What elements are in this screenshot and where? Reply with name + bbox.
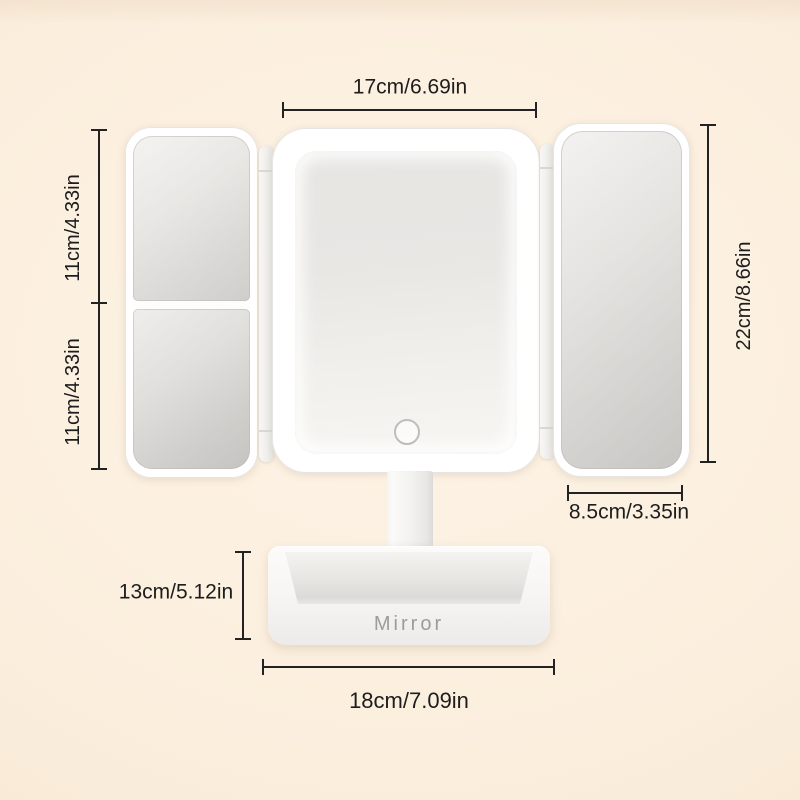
dim-line-side-panel-width <box>567 492 683 494</box>
product-dimension-diagram: Mirror 17cm/6.69in 11cm/4.33in 11cm/4.33… <box>0 0 800 800</box>
left-bottom-mirror-glass <box>133 309 250 469</box>
dim-line-right-total-height <box>707 124 709 463</box>
left-top-mirror-glass <box>133 136 250 301</box>
left-fold-panel <box>125 127 258 478</box>
right-mirror-glass <box>561 131 682 469</box>
dim-label-side-panel-width: 8.5cm/3.35in <box>569 500 689 523</box>
right-fold-panel <box>553 123 690 477</box>
center-mirror-glass <box>295 151 517 454</box>
dim-line-left-heights <box>98 129 100 470</box>
dim-label-stand-height: 13cm/5.12in <box>119 580 233 603</box>
base-tray: Mirror <box>268 546 550 645</box>
dim-label-left-upper-height: 11cm/4.33in <box>62 174 84 281</box>
dim-line-top-width <box>282 109 537 111</box>
dim-label-right-total-height: 22cm/8.66in <box>733 242 755 351</box>
dim-line-base-width <box>262 666 555 668</box>
left-panel-divider <box>133 301 250 309</box>
dim-line-stand-height <box>242 551 244 640</box>
dim-label-left-lower-height: 11cm/4.33in <box>62 338 84 445</box>
base-tray-recess <box>280 552 538 604</box>
touch-sensor-button <box>394 419 420 445</box>
base-brand-label: Mirror <box>268 613 550 636</box>
dim-tick-left-middle <box>91 302 107 304</box>
dim-label-top-width: 17cm/6.69in <box>353 75 467 98</box>
stand-neck <box>387 471 433 553</box>
dim-label-base-width: 18cm/7.09in <box>349 689 469 713</box>
